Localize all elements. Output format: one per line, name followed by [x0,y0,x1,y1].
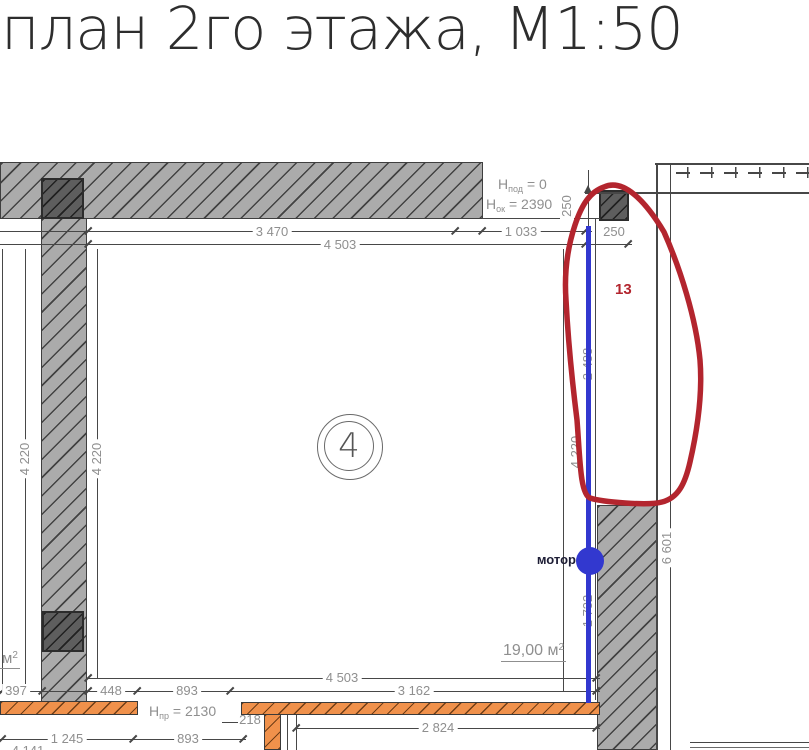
dim-arrow-icon [584,185,592,193]
dim-line-far-left [2,249,3,692]
window-sill-note: Hпод = 0 [498,176,547,194]
right-wall-outer-line [670,163,671,750]
right-column [599,190,629,221]
top-left-column [41,178,84,219]
room-right-face-line [595,218,596,700]
highlight-number: 13 [615,281,632,298]
partition-edge-line-2 [296,714,297,750]
room-tag: 4 [317,414,383,480]
motor-dot [576,547,604,575]
dim-397: 397 [2,684,30,698]
dim-1245: 1 245 [48,732,87,746]
dim-3162: 3 162 [395,684,434,698]
window-height-note: Hок = 2390 [486,196,552,214]
axis-centerline [676,172,809,174]
dim-4503-top: 4 503 [321,238,360,252]
dim-4141-partial: 4 141 [9,744,48,750]
passage-height-note: Hпр = 2130 [149,703,216,721]
dim-line-right-inner [563,249,564,691]
dim-3470: 3 470 [253,225,292,239]
dim-line-bottom-2 [0,691,600,692]
motor-label: мотор [528,552,576,567]
corridor-top-line [655,163,809,165]
dim-1033: 1 033 [502,225,541,239]
floor-plan-canvas: план 2го этажа, М1:50 [0,0,809,750]
dim-250-h: 250 [600,225,628,239]
dim-250-v: 250 [560,192,574,220]
adjacent-area-label-partial: м2 [0,650,20,669]
riser-pipe-line [586,226,591,703]
dim-893-lower: 893 [174,732,202,746]
left-wall-column [42,611,84,652]
bottom-right-line-2 [690,747,809,748]
page-title: план 2го этажа, М1:50 [1,0,683,63]
right-wall-inner-line [656,163,658,750]
orange-pillar [264,714,281,750]
dim-893-upper: 893 [173,684,201,698]
orange-partition-right [241,702,600,715]
dim-line-bottom-4 [0,739,246,740]
dim-line-top-2 [0,244,632,245]
dim-6601: 6 601 [660,529,674,568]
corridor-bottom-line [585,192,809,194]
dim-4503-bottom: 4 503 [323,671,362,685]
right-wall-lower [597,505,658,750]
room-area-label: 19,00 м2 [501,642,566,662]
partition-edge-line-1 [287,714,288,750]
dim-4220-left-outer: 4 220 [18,440,32,479]
dim-448: 448 [97,684,125,698]
dim-ext-line-250 [588,170,589,232]
window-opening-line [482,218,600,219]
room-number: 4 [338,426,360,466]
dim-218: 218 [236,713,264,727]
bottom-right-line-1 [690,742,809,743]
room-tag-inner-circle: 4 [324,421,374,471]
dim-4220-left-inner: 4 220 [90,440,104,479]
highlight-ellipse [540,168,730,548]
dim-2824: 2 824 [419,721,458,735]
dim-4220-right: 4 220 [569,433,583,472]
orange-partition-left [0,701,138,715]
